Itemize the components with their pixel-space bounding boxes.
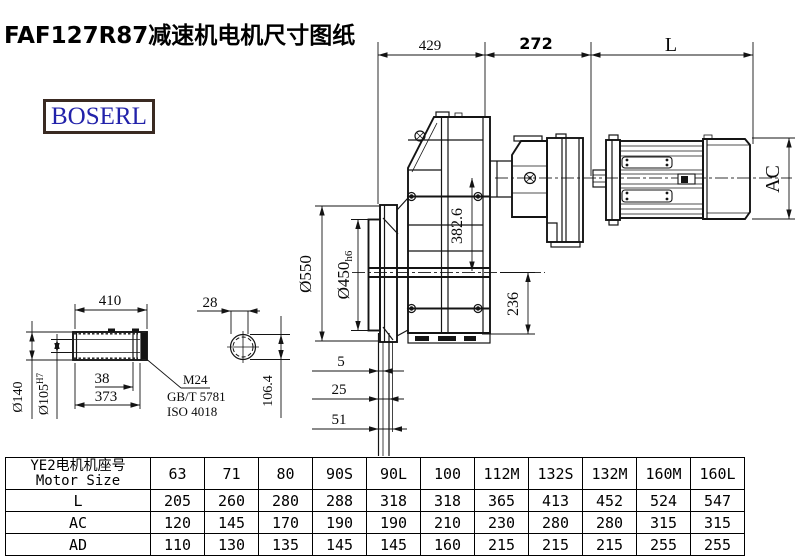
dimension-value: 318	[421, 490, 475, 512]
fan-cowl	[703, 135, 750, 219]
dim-105h7-label: Ø105H7	[35, 372, 52, 415]
dim-236-label: 236	[505, 292, 522, 316]
column-header: 90L	[367, 458, 421, 490]
column-header: 71	[205, 458, 259, 490]
motor-size-header: YE2电机机座号Motor Size	[6, 458, 151, 490]
dimension-value: 215	[529, 534, 583, 556]
dim-5-label: 5	[337, 354, 345, 370]
std1-label: GB/T 5781	[167, 389, 226, 404]
table-row: L205260280288318318365413452524547	[6, 490, 745, 512]
table-row: AC120145170190190210230280280315315	[6, 512, 745, 534]
column-header: 112M	[475, 458, 529, 490]
dimension-value: 160	[421, 534, 475, 556]
dim-105h7: Ø105H7	[35, 334, 72, 419]
dim-410: 410	[75, 293, 147, 329]
dimension-value: 145	[367, 534, 421, 556]
dimension-value: 315	[637, 512, 691, 534]
dim-28: 28	[197, 295, 260, 334]
column-header: 132S	[529, 458, 583, 490]
thread-label: M24	[183, 372, 208, 387]
dim-38-label: 38	[95, 371, 110, 387]
column-header: 63	[151, 458, 205, 490]
dimension-value: 145	[313, 534, 367, 556]
dimension-value: 524	[637, 490, 691, 512]
dim-106-4: 106.4	[250, 316, 290, 418]
dimension-value: 255	[637, 534, 691, 556]
input-adapter	[490, 134, 606, 247]
dimension-value: 110	[151, 534, 205, 556]
row-label: AD	[6, 534, 151, 556]
dim-450h6: Ø450h6	[334, 220, 369, 331]
dimension-value: 280	[529, 512, 583, 534]
motor-size-header-en: Motor Size	[6, 474, 150, 489]
dim-140-label: Ø140	[11, 381, 26, 412]
dimension-value: 547	[691, 490, 745, 512]
dimension-value: 170	[259, 512, 313, 534]
dimension-value: 280	[259, 490, 313, 512]
table-head: YE2电机机座号Motor Size63718090S90L100112M132…	[6, 458, 745, 490]
dim-51-label: 51	[332, 412, 347, 428]
dim-25-label: 25	[332, 382, 347, 398]
motor-pads	[622, 157, 672, 202]
dimension-value: 205	[151, 490, 205, 512]
column-header: 80	[259, 458, 313, 490]
dimension-value: 120	[151, 512, 205, 534]
dimension-value: 413	[529, 490, 583, 512]
table-body: L205260280288318318365413452524547AC1201…	[6, 490, 745, 556]
dimension-value: 365	[475, 490, 529, 512]
column-header: 160L	[691, 458, 745, 490]
dimension-value: 315	[691, 512, 745, 534]
motor-size-header-cn: YE2电机机座号	[6, 459, 150, 474]
dim-382-6-label: 382.6	[449, 208, 466, 244]
dim-106-4-label: 106.4	[261, 375, 276, 407]
dimension-value: 190	[313, 512, 367, 534]
mounting-plate	[379, 333, 393, 456]
dim-25: 25	[312, 382, 404, 402]
dimension-value: 190	[367, 512, 421, 534]
dimension-value: 260	[205, 490, 259, 512]
dim-28-label: 28	[203, 295, 218, 311]
output-flange	[369, 198, 409, 342]
column-header: 160M	[637, 458, 691, 490]
dimension-value: 145	[205, 512, 259, 534]
motor	[606, 135, 703, 225]
row-label: AC	[6, 512, 151, 534]
dim-272-label: 272	[519, 34, 552, 53]
column-header: 132M	[583, 458, 637, 490]
dim-AC: AC	[752, 138, 795, 219]
dimension-value: 230	[475, 512, 529, 534]
dim-5: 5	[312, 354, 404, 374]
dim-AC-label: AC	[762, 165, 784, 193]
dimension-table: YE2电机机座号Motor Size63718090S90L100112M132…	[5, 457, 745, 556]
dim-429-label: 429	[419, 38, 442, 54]
shaft-end-view	[227, 331, 259, 363]
dimension-value: 288	[313, 490, 367, 512]
column-header: 100	[421, 458, 475, 490]
dimension-value: 452	[583, 490, 637, 512]
table-row: AD110130135145145160215215215255255	[6, 534, 745, 556]
std2-label: ISO 4018	[167, 404, 217, 419]
dim-L-label: L	[665, 34, 677, 56]
dimension-value: 135	[259, 534, 313, 556]
dimension-value: 210	[421, 512, 475, 534]
dimension-value: 280	[583, 512, 637, 534]
dim-373-label: 373	[95, 389, 118, 405]
column-header: 90S	[313, 458, 367, 490]
flange-bolt-icons	[408, 193, 483, 313]
dimension-value: 130	[205, 534, 259, 556]
dimension-value: 255	[691, 534, 745, 556]
dim-450h6-label: Ø450h6	[334, 250, 355, 299]
dimension-value: 318	[367, 490, 421, 512]
dimension-value: 215	[583, 534, 637, 556]
dimension-value: 215	[475, 534, 529, 556]
header-row: YE2电机机座号Motor Size63718090S90L100112M132…	[6, 458, 745, 490]
dim-410-label: 410	[99, 293, 122, 309]
dim-38: 38	[95, 362, 134, 391]
thread-callout: M24 GB/T 5781 ISO 4018	[144, 357, 226, 419]
hollow-shaft-side-view	[73, 329, 147, 361]
dim-550-label: Ø550	[296, 255, 315, 293]
row-label: L	[6, 490, 151, 512]
